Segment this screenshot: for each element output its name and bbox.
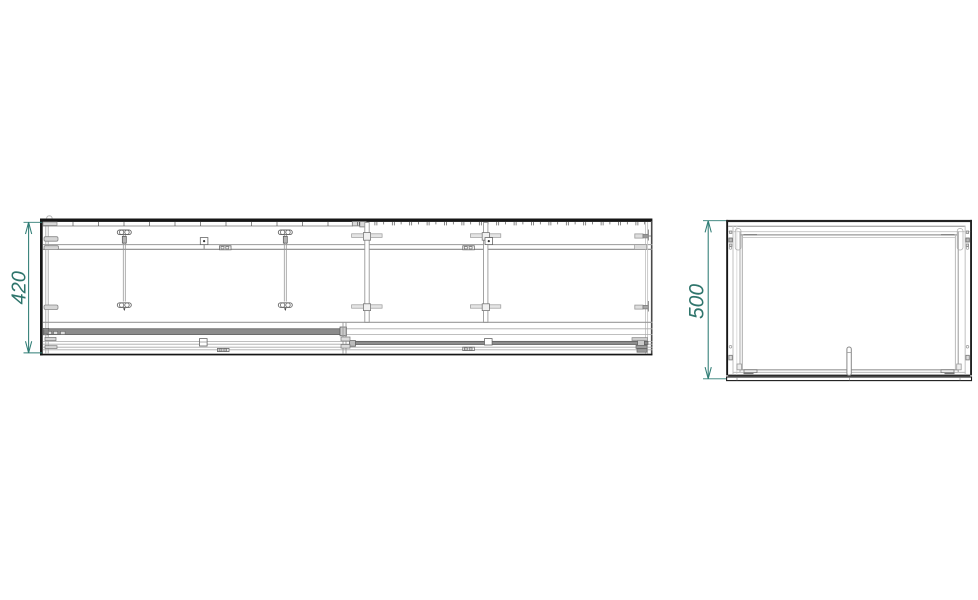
svg-text:500: 500 [686, 284, 709, 319]
svg-text:420: 420 [9, 271, 31, 304]
